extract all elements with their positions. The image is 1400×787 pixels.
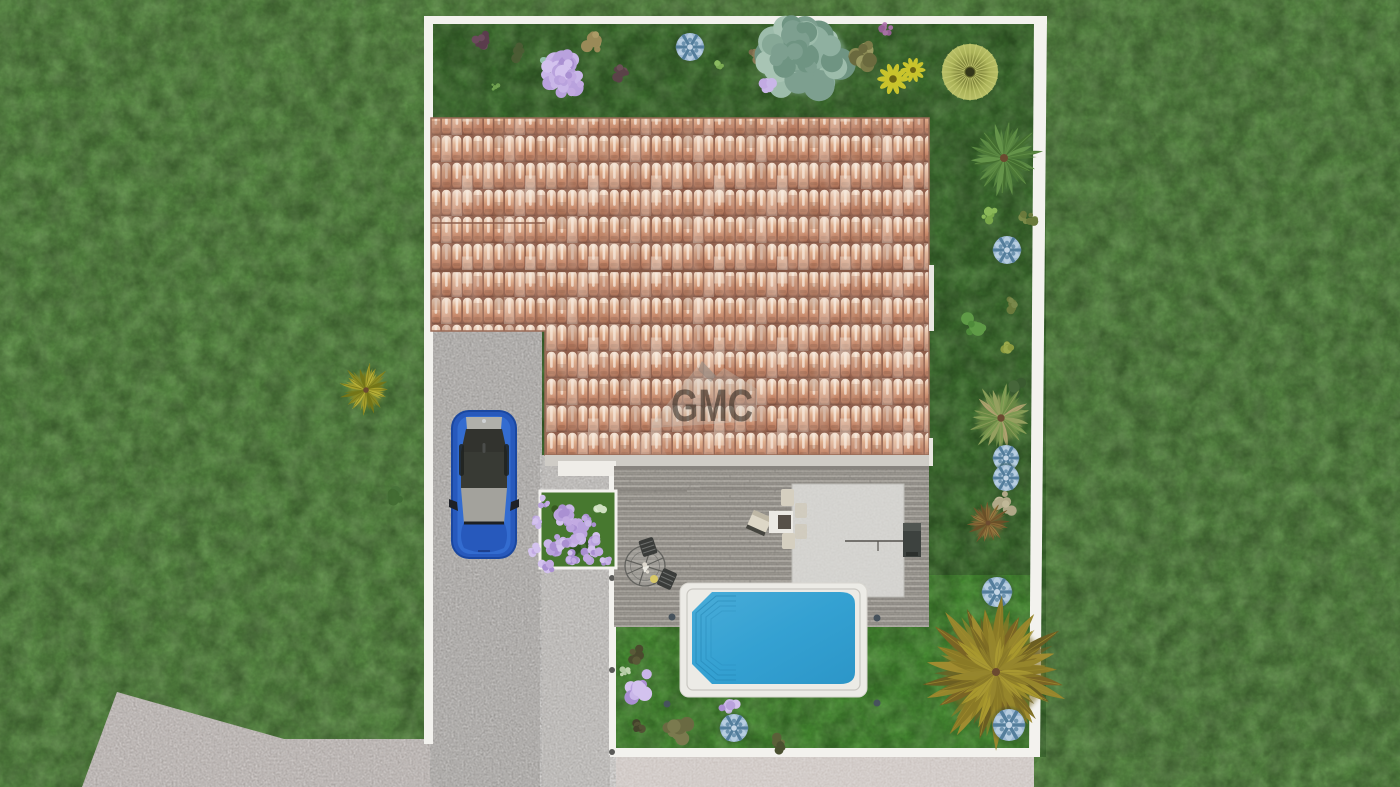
svg-text:GMC: GMC xyxy=(671,380,753,431)
